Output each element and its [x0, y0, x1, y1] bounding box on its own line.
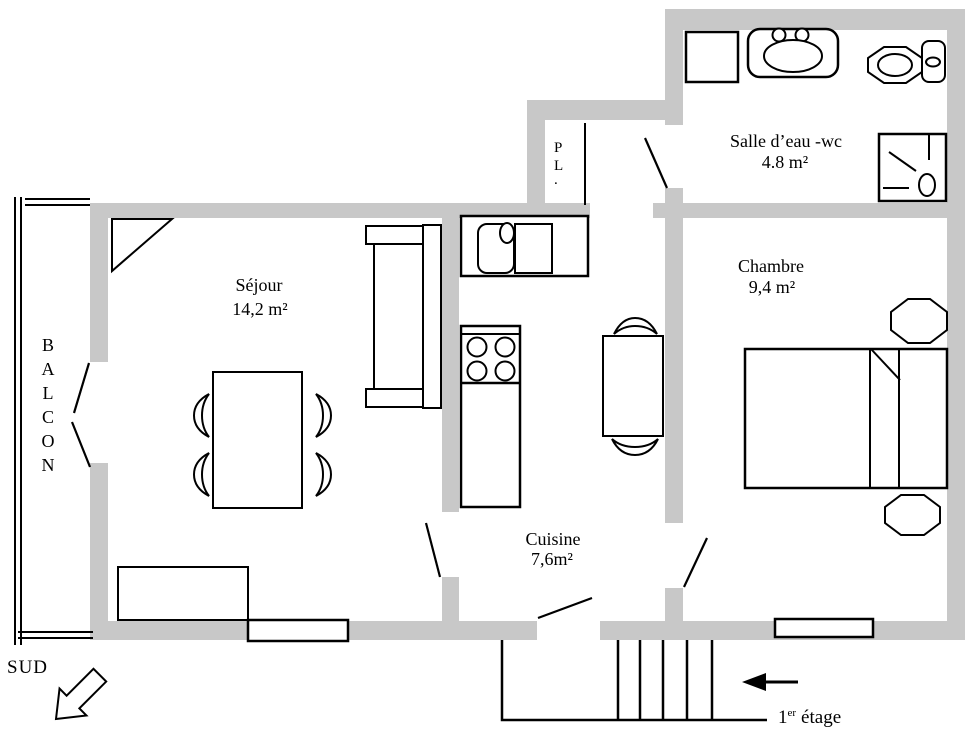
balcon-label-letter: O [42, 431, 55, 451]
chair-icon [194, 394, 209, 437]
sejour-cuisine-door-swing [426, 523, 440, 577]
balcon-label-letter: A [42, 359, 55, 379]
wall-bathroom-top [665, 9, 965, 30]
south-label: SUD [7, 657, 48, 678]
floor-number: 1 [778, 707, 788, 728]
stairs-outline [502, 640, 767, 720]
floor-ordinal: er [788, 707, 797, 719]
chambre-area-label: 9,4 m² [749, 277, 795, 297]
closet-label-letter: P [554, 140, 562, 156]
nightstand-octagon [891, 299, 947, 343]
stove-burner-icon [496, 338, 515, 357]
arrow-head [742, 673, 766, 691]
wall-west-lower [90, 463, 108, 640]
balcony-door-swing-lower [72, 422, 90, 467]
washing-machine-icon [686, 32, 738, 82]
sofa-armrest [366, 226, 423, 244]
sejour-area-label: 14,2 m² [232, 299, 287, 319]
bathroom-door-swing [645, 138, 667, 188]
stove-burner-icon [468, 338, 487, 357]
cuisine-label: Cuisine [525, 529, 580, 549]
kitchen-table [603, 336, 663, 436]
entry-door-swing [538, 598, 592, 618]
washbasin-icon [764, 40, 822, 72]
wall-chambre-left-stub [665, 588, 683, 640]
salle-eau-area-label: 4.8 m² [762, 152, 808, 172]
radiator [118, 567, 248, 620]
balcon-label-letter: C [42, 407, 54, 427]
sejour-label: Séjour [236, 275, 283, 295]
wall-west-upper [90, 203, 108, 362]
cistern-button-icon [926, 58, 940, 67]
chair-icon [614, 318, 657, 334]
balcon-label-letter: N [42, 455, 55, 475]
floor-plan: Séjour 14,2 m² Cuisine 7,6m² Chambre 9,4… [0, 0, 967, 729]
stairs [502, 640, 767, 720]
south-arrow-icon [43, 662, 114, 729]
south-arrow-shape [43, 662, 114, 729]
chambre-furniture [745, 299, 947, 637]
floor-label: 1erétage [778, 707, 841, 728]
chair-icon [194, 453, 209, 496]
chambre-label: Chambre [738, 256, 804, 276]
sofa-seat [374, 244, 423, 389]
cuisine-furniture [461, 216, 663, 507]
dining-table [213, 372, 302, 508]
floor-plan-drawing: Séjour 14,2 m² Cuisine 7,6m² Chambre 9,4… [0, 0, 967, 729]
wall-east [947, 9, 965, 640]
sofa-armrest [366, 389, 423, 407]
bed [745, 349, 947, 488]
corner-triangle-icon [112, 219, 172, 271]
chambre-window [775, 619, 873, 637]
closet-label-letter: . [554, 172, 558, 188]
chair-icon [316, 394, 331, 437]
wall-hallway-top [542, 100, 665, 120]
wall-chambre-left [665, 188, 683, 523]
stove-burner-icon [496, 362, 515, 381]
wall-divider-stub [442, 577, 459, 640]
kitchen-faucet-icon [500, 223, 514, 243]
balcon-label-letter: B [42, 335, 54, 355]
stairs-direction-arrow-icon [742, 673, 798, 691]
sofa-backrest [423, 225, 441, 408]
stove-burner-icon [468, 362, 487, 381]
chambre-door-swing [684, 538, 707, 587]
shower-head-icon [919, 174, 935, 196]
bathroom-fixtures [686, 29, 946, 202]
balcony-door-swing-upper [74, 363, 89, 413]
kitchen-drainboard [515, 224, 552, 273]
wall-divider-upper [442, 218, 459, 512]
floor-word: étage [801, 707, 841, 728]
salle-eau-label: Salle d’eau -wc [730, 131, 842, 151]
sejour-window [248, 620, 348, 641]
wall-closet-west [527, 100, 545, 218]
chair-icon [316, 453, 331, 496]
chair-icon [612, 439, 658, 455]
toilet-seat-icon [878, 54, 912, 76]
wall-chambre-top [653, 203, 965, 218]
faucet-knob-icon [773, 29, 786, 42]
wall-bathroom-left-upper [665, 9, 683, 125]
cuisine-area-label: 7,6m² [531, 549, 573, 569]
nightstand-octagon [885, 495, 940, 535]
balcon-label-letter: L [43, 383, 54, 403]
